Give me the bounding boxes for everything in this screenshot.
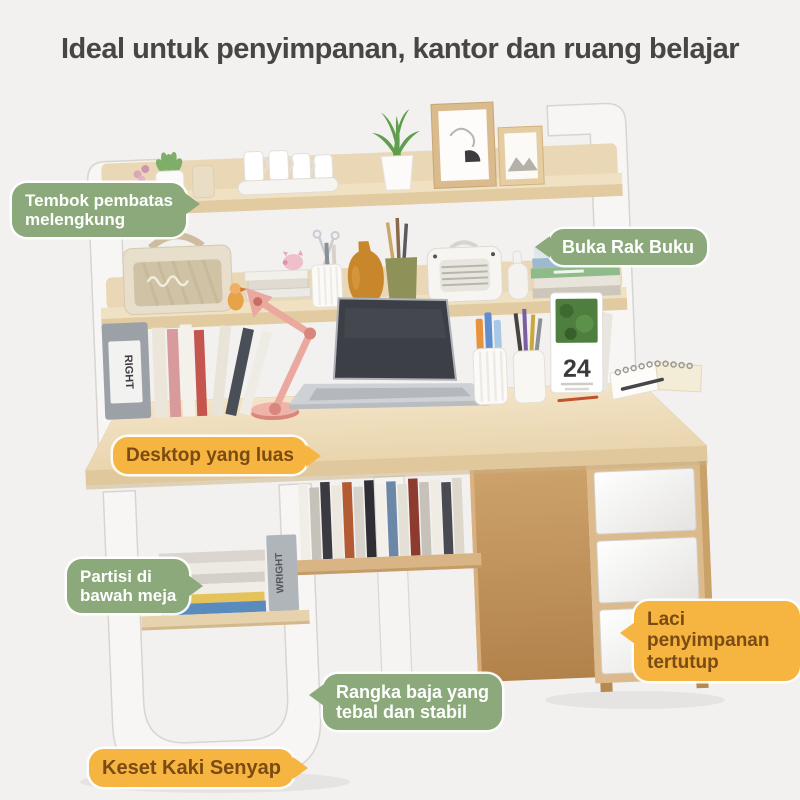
drawer — [594, 468, 696, 534]
callout-silent-foot-pads: Keset Kaki Senyap — [89, 749, 294, 787]
retro-radio — [427, 241, 503, 303]
callout-steel-frame: Rangka baja yang tebal dan stabil — [323, 674, 502, 730]
bookend-label: WRIGHT — [274, 552, 287, 593]
picture-frames — [431, 100, 544, 188]
callout-curved-partition: Tembok pembatas melengkung — [12, 183, 186, 237]
pen-cup — [511, 308, 546, 403]
cabinet-side-panel — [470, 466, 595, 683]
calendar-day: 24 — [563, 355, 591, 383]
marker-cup — [471, 312, 508, 405]
vintage-speaker — [122, 234, 233, 315]
floor-shadow-right — [545, 691, 725, 709]
small-vase — [507, 251, 529, 300]
callout-closed-storage-drawers: Laci penyimpanan tertutup — [634, 601, 800, 681]
product-image: Ideal untuk penyimpanan, kantor dan ruan… — [0, 0, 800, 800]
pig-figurine — [282, 250, 303, 271]
callout-open-book-rack: Buka Rak Buku — [549, 229, 707, 265]
stationery-cup — [310, 230, 343, 308]
callout-under-desk-partition: Partisi di bawah meja — [67, 559, 189, 613]
file-box-label: RIGHT — [122, 355, 135, 390]
callout-spacious-desktop: Desktop yang luas — [113, 437, 307, 474]
drawer — [597, 537, 699, 603]
file-box: RIGHT — [102, 322, 152, 420]
mug-tray — [237, 148, 339, 195]
loop-leg — [103, 484, 323, 788]
brush-pot — [383, 217, 418, 304]
